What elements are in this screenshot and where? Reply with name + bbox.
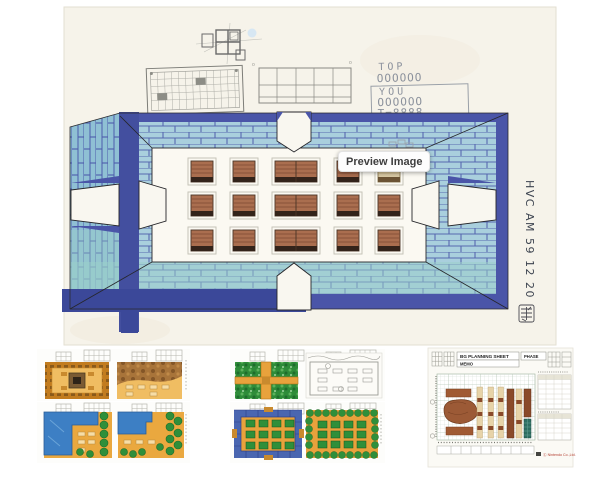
copyright-text: Ⓒ Nintendo Co.,Ltd. [543, 452, 576, 457]
block-shadow-band [337, 211, 359, 216]
thumbnail-planning-sheet[interactable]: BG PLANNING SHEET MEMO PHASE [428, 348, 576, 467]
planning-sheet-title: BG PLANNING SHEET [460, 354, 509, 359]
block-shadow-band [191, 177, 213, 182]
right-wall-edge [496, 113, 508, 309]
block-shadow-band [233, 211, 255, 216]
scanned-artwork: o o TOP OOOOOO YOU OOOOOO T=8888 [0, 0, 600, 477]
block-shadow-band [191, 211, 213, 216]
thumbnail-middle-sheet[interactable] [230, 349, 385, 463]
planning-tables [538, 372, 571, 440]
mini-level-tree-room [306, 410, 379, 459]
mini-level-water-left [44, 412, 112, 458]
block-shadow-band [378, 211, 400, 216]
block-shadow-band [337, 246, 359, 251]
planning-sheet-phase: PHASE [524, 354, 539, 359]
page: o o TOP OOOOOO YOU OOOOOO T=8888 [0, 0, 600, 477]
mini-level-amber-fortress [45, 362, 109, 399]
mini-level-blue-room [232, 407, 304, 460]
block-shadow-band [378, 177, 400, 182]
planning-bottom-strip [437, 446, 534, 454]
mini-level-amber-cave [117, 362, 182, 399]
preview-image-label: Preview Image [346, 156, 422, 168]
svg-text:o: o [252, 62, 255, 68]
svg-text:o: o [349, 60, 352, 66]
mini-level-water-right [118, 412, 184, 458]
planning-sheet-memo: MEMO [460, 362, 474, 367]
boulder-shape [444, 400, 477, 424]
main-scan[interactable]: o o TOP OOOOOO YOU OOOOOO T=8888 [62, 7, 556, 345]
block-shadow-band [191, 246, 213, 251]
block-shadow-band [378, 246, 400, 251]
planning-grid [430, 374, 535, 443]
mini-level-pencil-sketch [306, 353, 382, 398]
thumbnail-left-sheet[interactable] [37, 349, 190, 463]
block-shadow-band [233, 177, 255, 182]
score-top-value: OOOOOO [377, 71, 423, 85]
logo-mark [536, 452, 541, 456]
top-wall-edge [120, 113, 508, 122]
blue-dot [248, 29, 257, 38]
mini-level-forest-cross [235, 362, 298, 399]
tan-columns [477, 387, 504, 438]
block-shadow-band [337, 177, 359, 182]
block-shadow-band [233, 246, 255, 251]
preview-image-tooltip[interactable]: Preview Image [338, 151, 430, 172]
room-drawing [62, 112, 508, 333]
annotation-text: HVC AM 59 12 20 [523, 180, 536, 299]
